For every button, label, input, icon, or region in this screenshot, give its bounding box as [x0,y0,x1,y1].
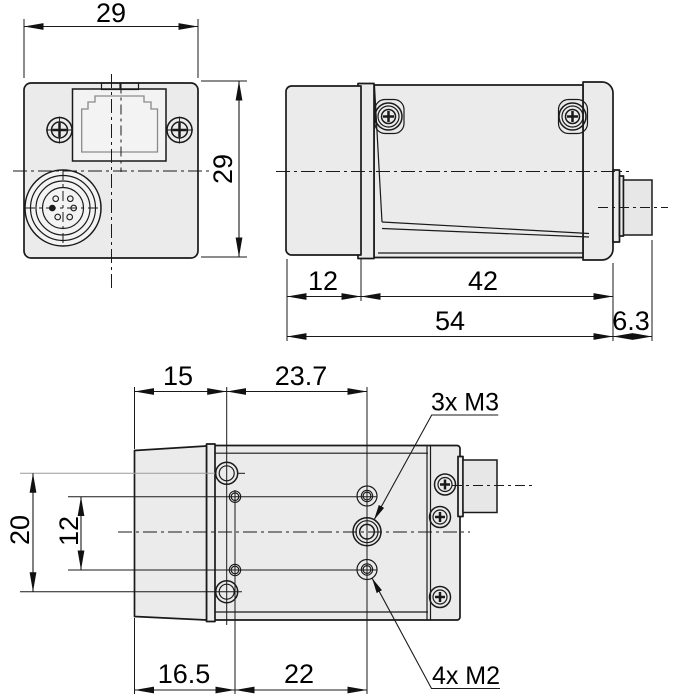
cap-screw [430,507,451,528]
lens-mount-side [286,86,361,255]
dim-bottom-m2-span: 22 [284,659,314,689]
dim-bottom-front-m2: 16.5 [158,659,211,689]
rear-connector-bottom [463,460,497,513]
dim-bottom-front-m3: 15 [163,361,193,391]
front-plate-bottom [207,444,216,622]
cap-screw [430,587,451,608]
drawing-canvas: 29 29 [0,0,693,700]
cap-screw [435,474,456,495]
rear-view: 29 29 [13,0,247,291]
label-3x-m3: 3x M3 [431,389,499,417]
circular-connector [25,170,101,246]
dim-side-body: 42 [468,266,498,296]
technical-drawing: 29 29 [0,0,693,700]
rj45-port-recess [73,89,167,161]
dim-side-lens: 12 [308,266,338,296]
lens-mount-bottom [135,446,207,620]
side-view: 12 42 54 6.3 [276,82,668,341]
dim-bottom-outer-vert: 20 [5,515,35,545]
bottom-view: 15 23.7 20 12 16.5 22 3x M3 4x M2 [5,361,532,694]
camera-body-bottom [211,446,460,621]
dim-rear-width: 29 [96,0,126,28]
connector-flange [613,170,620,242]
dim-side-connector: 6.3 [612,306,650,336]
dim-rear-height: 29 [208,154,238,184]
dim-bottom-inner-vert: 12 [54,516,84,546]
label-4x-m2: 4x M2 [432,662,500,690]
dim-side-overall: 54 [435,306,465,336]
dim-bottom-m3-span: 23.7 [275,361,328,391]
